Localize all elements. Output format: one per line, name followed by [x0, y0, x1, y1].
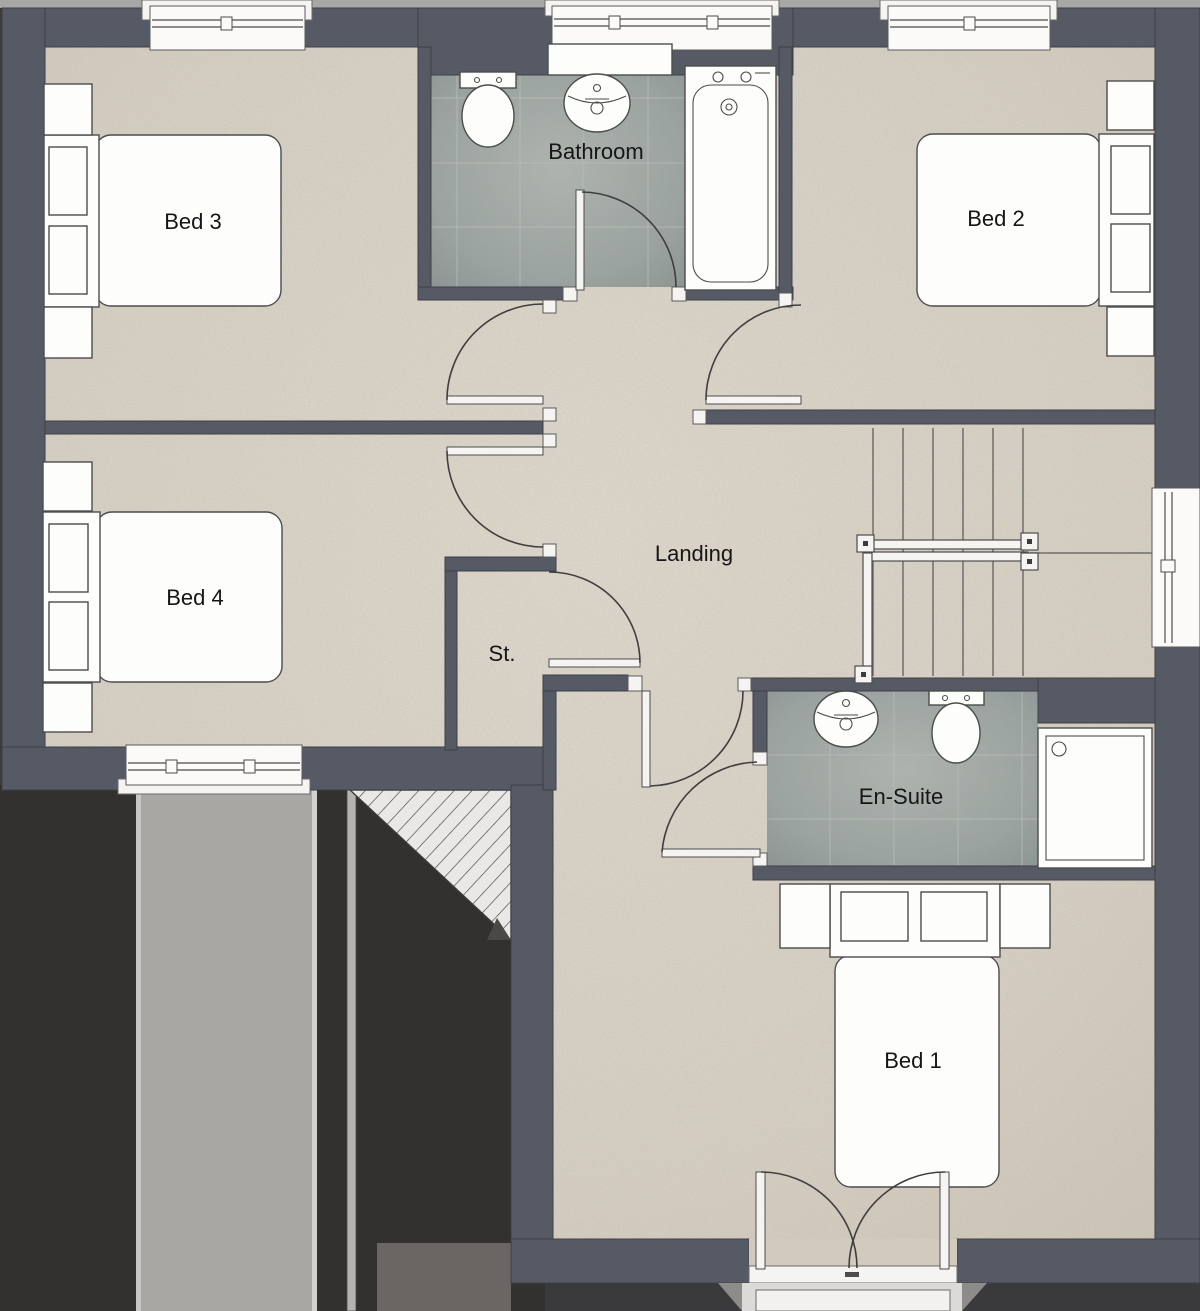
window-bed4: [118, 745, 310, 794]
floor-plan: Bed 3 Bathroom Bed 2 Bed 4 Landing St. E…: [0, 0, 1200, 1311]
bedside-table-icon: [43, 462, 92, 511]
room-label-bed3: Bed 3: [164, 209, 222, 234]
bedside-table-icon: [1107, 81, 1154, 130]
room-label-bed2: Bed 2: [967, 206, 1025, 231]
room-label-bed4: Bed 4: [166, 585, 224, 610]
window-bed2: [880, 0, 1057, 50]
pillow-icon: [49, 147, 87, 215]
bedside-table-icon: [1107, 307, 1154, 356]
bedside-table-icon: [44, 307, 92, 358]
pillow-icon: [49, 524, 88, 592]
room-label-landing: Landing: [655, 541, 733, 566]
bathtub-icon: [685, 66, 776, 290]
bedside-table-icon: [1000, 884, 1050, 948]
bedside-table-icon: [44, 84, 92, 135]
toilet-icon: [460, 72, 516, 147]
porch-roof-below: [377, 1243, 511, 1311]
room-label-store: St.: [489, 641, 516, 666]
pillow-icon: [49, 226, 87, 294]
room-label-bathroom: Bathroom: [548, 139, 643, 164]
room-label-bed1: Bed 1: [884, 1048, 942, 1073]
pillow-icon: [1111, 224, 1150, 292]
pillow-icon: [921, 892, 987, 941]
window-bathroom: [545, 0, 779, 50]
pillow-icon: [49, 602, 88, 670]
room-label-ensuite: En-Suite: [859, 784, 943, 809]
pillow-icon: [1111, 146, 1150, 214]
vanity-counter-icon: [548, 44, 672, 75]
bedside-table-icon: [43, 683, 92, 732]
sink-basin-icon: [814, 691, 878, 747]
sink-basin-icon: [564, 74, 630, 132]
shower-tray-icon: [1038, 728, 1152, 868]
roof-ridge-line: [347, 790, 356, 1311]
bedside-table-icon: [780, 884, 830, 948]
floor-plan-canvas: Bed 3 Bathroom Bed 2 Bed 4 Landing St. E…: [0, 0, 1200, 1311]
flat-roof-below: [136, 790, 317, 1311]
pillow-icon: [841, 892, 908, 941]
juliet-balcony-icon: [718, 1283, 987, 1311]
window-stairs: [1152, 488, 1200, 647]
window-bed3: [142, 0, 312, 50]
